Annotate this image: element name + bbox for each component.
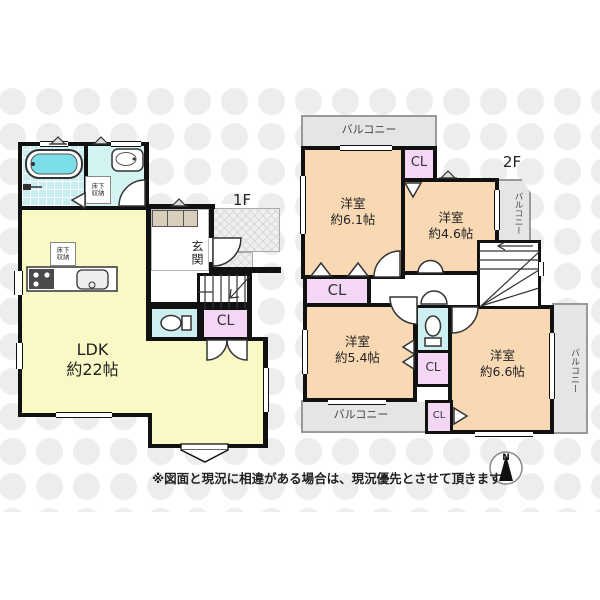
f1-window-kitchen: [14, 271, 23, 295]
f1-floor-text: 1F: [233, 191, 251, 209]
f2-room-4-6-label: 洋室 約4.6帖: [410, 210, 492, 241]
disclaimer-text: ※図面と現況に相違がある場合は、現況優先とさせて頂きます: [152, 468, 502, 487]
disclaimer-span: ※図面と現況に相違がある場合は、現況優先とさせて頂きます: [152, 471, 502, 486]
f1-entrance-label: 玄関: [188, 231, 204, 275]
f2-closet-bottom-label: CL: [426, 410, 452, 423]
f1-closet-text: CL: [217, 313, 235, 329]
f1-wall-washroom-right: [144, 142, 149, 210]
f1-ldk-area-bottom: [148, 341, 267, 448]
f1-bathroom: [18, 142, 88, 210]
f2-room-4-6-size: 約4.6帖: [429, 226, 474, 241]
f1-window-ldk-bottom: [56, 412, 112, 418]
f2-window-66-right: [549, 333, 555, 399]
f2-floor-label: 2F: [498, 153, 526, 172]
f2-room-6-1-name: 洋室: [340, 196, 365, 211]
f1-window-bath: [40, 141, 68, 147]
f1-window-washroom: [111, 141, 141, 147]
f2-balcony-right-top-label: バルコニー: [505, 186, 523, 240]
f1-wall-door-upper: [209, 208, 214, 238]
f1-wall-entrance-top: [146, 204, 215, 209]
f2-room-4-6-name: 洋室: [438, 210, 463, 225]
f1-ldk-size: 約22帖: [66, 360, 118, 379]
f1-underfloor-storage-washroom: 床下収納: [85, 176, 111, 204]
f2-balcony-right-top-text: バルコニー: [513, 192, 523, 235]
f2-room-5-4-label: 洋室 約5.4帖: [315, 334, 400, 365]
floorplan-canvas: 床下収納 床下収納 LDK 約22帖 CL 玄関 1F バルコニー バルコニー …: [0, 0, 600, 600]
f1-entrance-text: 玄関: [190, 240, 204, 266]
f2-floor-text: 2F: [503, 153, 521, 171]
f1-wall-porch-bottom: [209, 267, 281, 273]
f1-underfloor-storage-washroom-label: 床下収納: [91, 183, 105, 198]
f2-balcony-top-label: バルコニー: [311, 123, 427, 137]
f1-toilet: [149, 306, 200, 341]
f1-ldk-label: LDK 約22帖: [30, 340, 155, 380]
f2-balcony-right-bottom-label: バルコニー: [561, 330, 579, 410]
f2-room-6-1-label: 洋室 約6.1帖: [313, 196, 393, 227]
f1-ldk-area-left: [22, 210, 148, 417]
f1-wall-cl-bottom-left: [146, 337, 207, 341]
f1-wall-bottom: [148, 444, 268, 448]
f2-window-61-top: [340, 145, 392, 151]
f2-stairs: [477, 240, 541, 309]
f1-entrance-porch: [212, 208, 280, 252]
f2-window-stairs: [538, 262, 544, 276]
f1-underfloor-storage-ldk-label: 床下収納: [56, 247, 70, 262]
f1-underfloor-storage-ldk: 床下収納: [50, 242, 76, 266]
f1-window-ldk-left: [16, 343, 23, 369]
f2-closet-left-label: CL: [308, 281, 366, 300]
f1-wall-step: [148, 413, 152, 448]
f1-wall-toilet-top: [146, 302, 252, 306]
f2-closet-mid-text: CL: [425, 360, 440, 374]
f1-wall-bath-bottom: [18, 206, 149, 210]
f2-window-54-bottom: [328, 399, 386, 405]
f1-ldk-name: LDK: [77, 340, 109, 359]
f2-closet-bottom-text: CL: [433, 410, 446, 421]
f2-balcony-top-text: バルコニー: [342, 123, 397, 136]
f2-room-6-1-size: 約6.1帖: [331, 212, 376, 227]
f2-balcony-bottom-text: バルコニー: [334, 408, 389, 421]
f2-balcony-right-bottom-text: バルコニー: [569, 348, 579, 393]
f2-closet-left-text: CL: [328, 281, 347, 299]
f1-shoe-cabinet: [152, 210, 198, 227]
f1-closet-label: CL: [203, 313, 248, 331]
f2-room-5-4-size: 約5.4帖: [335, 350, 380, 365]
f1-window-ldk-right: [263, 368, 269, 412]
f2-toilet: [415, 305, 451, 354]
f2-closet-mid-label: CL: [418, 360, 448, 375]
f2-window-61-left: [300, 176, 306, 234]
f2-window-54-left: [302, 330, 308, 374]
f1-wall-service-right: [247, 273, 252, 341]
f2-closet-top-label: CL: [404, 155, 434, 171]
f1-wall-service-left: [146, 206, 151, 341]
f2-window-46-right: [494, 190, 500, 230]
f2-room-6-6-name: 洋室: [490, 348, 515, 363]
f2-room-5-4-name: 洋室: [345, 334, 370, 349]
f2-window-66-bottom: [475, 431, 533, 437]
f2-room-6-6-size: 約6.6帖: [480, 364, 525, 379]
f2-balcony-bottom-label: バルコニー: [306, 408, 416, 422]
f1-floor-label: 1F: [228, 191, 256, 210]
f2-room-6-6-label: 洋室 約6.6帖: [460, 348, 545, 379]
f2-closet-top-text: CL: [411, 155, 427, 170]
